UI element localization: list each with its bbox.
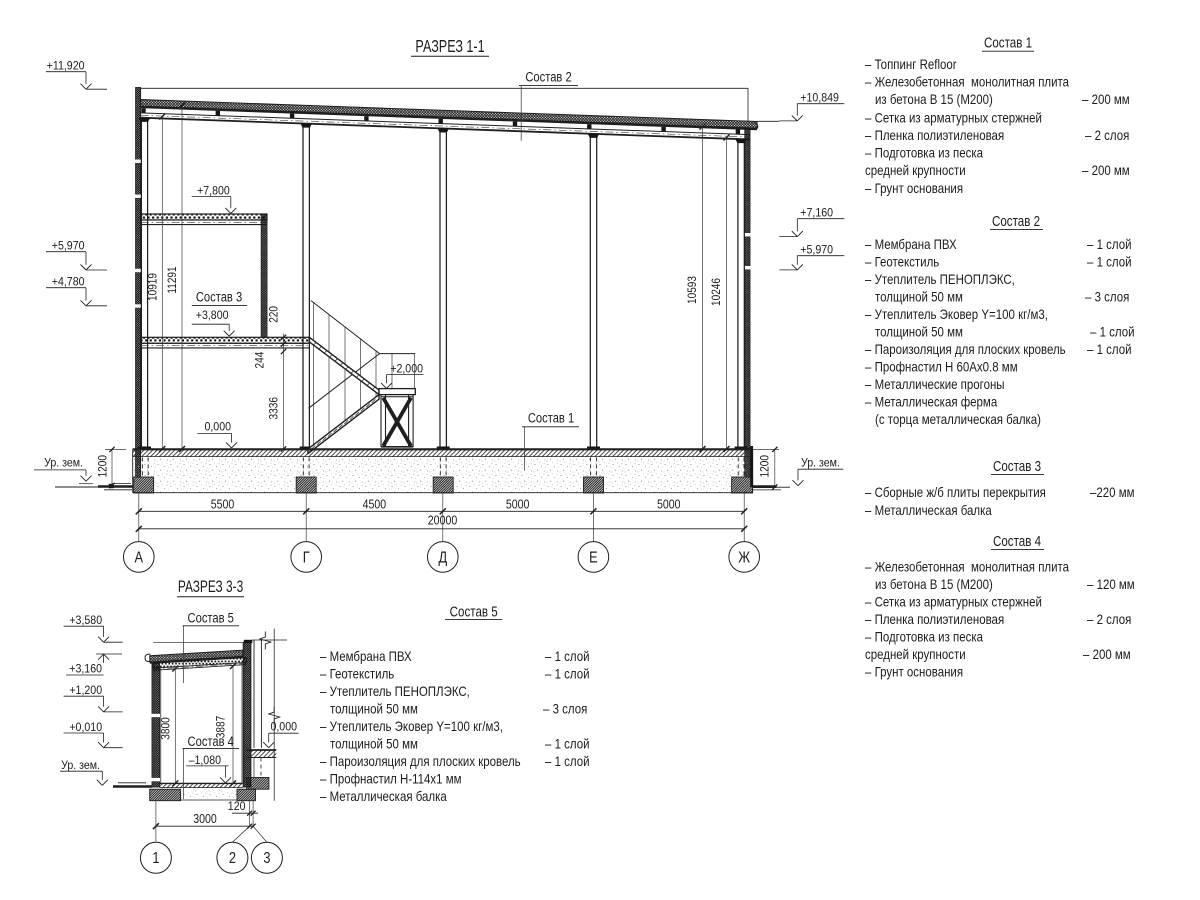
svg-text:5500: 5500	[211, 497, 235, 511]
svg-text:10593: 10593	[686, 276, 699, 304]
svg-text:– 3 слоя: – 3 слоя	[543, 700, 587, 716]
svg-text:средней крупности: средней крупности	[865, 162, 966, 178]
svg-text:Состав 3: Состав 3	[993, 458, 1041, 475]
svg-text:120: 120	[228, 801, 246, 814]
svg-text:5000: 5000	[506, 497, 530, 511]
svg-text:– Топпинг Refloor: – Топпинг Refloor	[865, 56, 957, 72]
svg-text:толщиной 50 мм: толщиной 50 мм	[330, 735, 418, 751]
svg-text:– Пленка полиэтиленовая: – Пленка полиэтиленовая	[865, 611, 1004, 627]
svg-text:– Сетка из арматурных стержней: – Сетка из арматурных стержней	[865, 109, 1042, 125]
svg-text:Состав 1: Состав 1	[984, 34, 1032, 51]
svg-text:– Сборные ж/б плиты перекрытия: – Сборные ж/б плиты перекрытия	[865, 484, 1046, 500]
svg-text:+5,970: +5,970	[800, 244, 833, 257]
svg-text:– Утеплитель Эковер Y=100 кг/м: – Утеплитель Эковер Y=100 кг/м3,	[320, 718, 503, 734]
svg-text:– 2 слоя: – 2 слоя	[1087, 611, 1131, 627]
svg-text:+0,010: +0,010	[69, 721, 102, 734]
svg-text:– 1 слой: – 1 слой	[545, 648, 589, 664]
svg-text:– 120 мм: – 120 мм	[1087, 576, 1135, 592]
svg-text:– 1 слой: – 1 слой	[545, 735, 589, 751]
svg-text:Состав 5: Состав 5	[188, 610, 234, 625]
svg-text:РАЗРЕЗ 3-3: РАЗРЕЗ 3-3	[178, 578, 243, 597]
svg-text:– Подготовка из песка: – Подготовка из песка	[865, 628, 984, 644]
svg-text:+3,160: +3,160	[69, 663, 102, 676]
svg-text:Ур. зем.: Ур. зем.	[61, 759, 100, 772]
svg-text:– Металлическая балка: – Металлическая балка	[320, 788, 448, 804]
svg-text:1200: 1200	[759, 455, 772, 477]
svg-text:– Геотекстиль: – Геотекстиль	[865, 253, 940, 269]
svg-text:+7,160: +7,160	[800, 207, 833, 220]
svg-text:– Профнастил Н-114х1 мм: – Профнастил Н-114х1 мм	[320, 770, 462, 786]
svg-text:Состав 5: Состав 5	[450, 603, 498, 620]
svg-text:– 1 слой: – 1 слой	[545, 665, 589, 681]
svg-text:– Подготовка из песка: – Подготовка из песка	[865, 144, 984, 160]
svg-text:Ур. зем.: Ур. зем.	[44, 457, 83, 470]
svg-text:– Профнастил Н 60Ах0.8 мм: – Профнастил Н 60Ах0.8 мм	[865, 358, 1018, 374]
svg-text:– 200 мм: – 200 мм	[1083, 646, 1131, 662]
svg-text:Состав 4: Состав 4	[993, 533, 1041, 550]
svg-text:Е: Е	[589, 549, 598, 567]
svg-text:3336: 3336	[268, 397, 281, 419]
svg-text:средней крупности: средней крупности	[865, 646, 966, 662]
svg-text:– Утеплитель ПЕНОПЛЭКС,: – Утеплитель ПЕНОПЛЭКС,	[865, 271, 1015, 287]
svg-text:Ур. зем.: Ур. зем.	[801, 457, 840, 470]
svg-text:Состав 2: Состав 2	[525, 69, 571, 84]
svg-text:– 200 мм: – 200 мм	[1082, 162, 1130, 178]
svg-text:+3,800: +3,800	[196, 309, 229, 322]
svg-text:– Железобетонная монолитная п: – Железобетонная монолитная плита	[865, 558, 1070, 574]
svg-text:Состав 4: Состав 4	[188, 734, 234, 749]
svg-text:+2,000: +2,000	[390, 363, 423, 376]
svg-text:Состав 1: Состав 1	[528, 410, 574, 425]
svg-text:3800: 3800	[160, 717, 173, 739]
svg-text:0,000: 0,000	[270, 721, 297, 734]
svg-text:(с торца металлическая балка): (с торца металлическая балка)	[875, 411, 1041, 427]
svg-text:10919: 10919	[147, 273, 160, 301]
svg-text:– Пленка полиэтиленовая: – Пленка полиэтиленовая	[865, 127, 1004, 143]
svg-text:толщиной 50 мм: толщиной 50 мм	[875, 288, 963, 304]
svg-text:– Мембрана ПВХ: – Мембрана ПВХ	[320, 648, 412, 664]
svg-text:10246: 10246	[710, 278, 723, 306]
svg-text:– 1 слой: – 1 слой	[1090, 323, 1134, 339]
svg-text:+4,780: +4,780	[52, 276, 85, 289]
svg-text:толщиной 50 мм: толщиной 50 мм	[330, 700, 418, 716]
svg-text:+11,920: +11,920	[47, 60, 85, 73]
svg-text:0,000: 0,000	[204, 421, 231, 434]
svg-text:– Пароизоляция для плоских кро: – Пароизоляция для плоских кровель	[865, 341, 1066, 357]
svg-text:1: 1	[152, 850, 159, 868]
svg-text:1200: 1200	[97, 455, 110, 477]
svg-text:4500: 4500	[363, 497, 387, 511]
svg-text:3000: 3000	[193, 812, 217, 826]
svg-text:2: 2	[229, 850, 236, 868]
svg-text:– Пароизоляция для плоских кро: – Пароизоляция для плоских кровель	[320, 753, 521, 769]
svg-text:– 3 слоя: – 3 слоя	[1085, 288, 1129, 304]
svg-text:– Утеплитель Эковер Y=100 кг/м: – Утеплитель Эковер Y=100 кг/м3,	[865, 306, 1048, 322]
svg-text:толщиной 50 мм: толщиной 50 мм	[875, 323, 963, 339]
svg-text:– Металлические прогоны: – Металлические прогоны	[865, 376, 1005, 392]
svg-text:Ж: Ж	[738, 549, 750, 567]
svg-text:– Геотекстиль: – Геотекстиль	[320, 665, 395, 681]
svg-text:– Металлическая балка: – Металлическая балка	[865, 502, 993, 518]
svg-text:5000: 5000	[657, 497, 681, 511]
svg-text:– 1 слой: – 1 слой	[545, 753, 589, 769]
svg-text:+10,849: +10,849	[800, 92, 839, 105]
svg-text:Состав 3: Состав 3	[196, 289, 242, 304]
svg-text:+3,580: +3,580	[69, 614, 102, 627]
svg-text:–1,080: –1,080	[189, 754, 221, 767]
svg-text:+5,970: +5,970	[52, 240, 85, 253]
svg-text:20000: 20000	[428, 513, 458, 527]
svg-text:– Грунт основания: – Грунт основания	[865, 180, 963, 196]
svg-text:А: А	[135, 549, 144, 567]
svg-text:11291: 11291	[166, 266, 179, 293]
svg-text:из бетона В 15 (М200): из бетона В 15 (М200)	[875, 576, 993, 592]
svg-text:РАЗРЕЗ 1-1: РАЗРЕЗ 1-1	[415, 37, 484, 57]
svg-text:– 1 слой: – 1 слой	[1087, 253, 1131, 269]
svg-text:+7,800: +7,800	[197, 185, 230, 198]
svg-text:Д: Д	[438, 549, 447, 567]
svg-text:+1,200: +1,200	[69, 684, 102, 697]
svg-text:– Мембрана ПВХ: – Мембрана ПВХ	[865, 236, 957, 252]
svg-text:– 2 слоя: – 2 слоя	[1085, 127, 1129, 143]
svg-text:– 1 слой: – 1 слой	[1087, 341, 1131, 357]
svg-text:– 200 мм: – 200 мм	[1082, 91, 1130, 107]
svg-text:Состав 2: Состав 2	[992, 213, 1040, 230]
svg-text:– Металлическая ферма: – Металлическая ферма	[865, 393, 998, 409]
svg-text:из бетона В 15 (М200): из бетона В 15 (М200)	[875, 91, 993, 107]
svg-text:– Утеплитель ПЕНОПЛЭКС,: – Утеплитель ПЕНОПЛЭКС,	[320, 683, 470, 699]
svg-text:244: 244	[254, 352, 267, 369]
svg-text:– Грунт основания: – Грунт основания	[865, 663, 963, 679]
svg-text:– 1 слой: – 1 слой	[1087, 236, 1131, 252]
svg-text:– Сетка из арматурных стержней: – Сетка из арматурных стержней	[865, 593, 1042, 609]
svg-text:3: 3	[263, 850, 270, 868]
svg-text:220: 220	[268, 306, 281, 323]
svg-text:Г: Г	[303, 549, 310, 567]
svg-text:– Железобетонная монолитная п: – Железобетонная монолитная плита	[865, 73, 1070, 89]
svg-text:–220 мм: –220 мм	[1090, 484, 1134, 500]
